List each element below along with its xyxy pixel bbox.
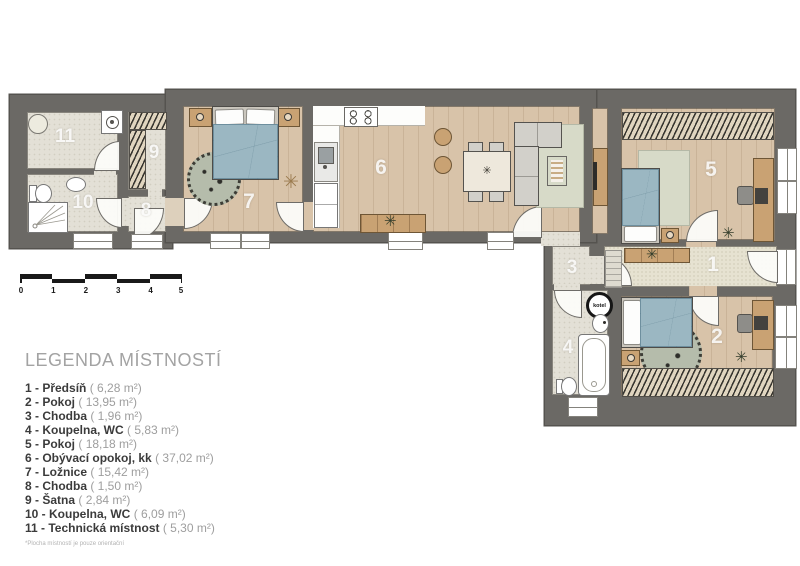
nightstand-room7-left — [189, 108, 212, 127]
window-room7-b — [241, 233, 270, 249]
window-room2-b — [775, 337, 797, 369]
nightstand-room5 — [661, 228, 679, 243]
legend-item: 3 - Chodba ( 1,96 m²) — [25, 409, 305, 423]
window-room8 — [131, 234, 163, 249]
toilet-bowl-room4 — [561, 377, 577, 396]
scale-tick-left — [20, 274, 22, 283]
window-room10 — [73, 233, 113, 249]
window-room6-a — [388, 232, 423, 250]
plant-room2-icon: ✳ — [735, 350, 748, 365]
window-room4 — [568, 397, 598, 417]
door-gap-room9 — [148, 189, 162, 197]
scale-label-2: 2 — [81, 286, 91, 295]
legend: LEGENDA MÍSTNOSTÍ 1 - Předsíň ( 6,28 m²)… — [25, 350, 305, 547]
duvet-room7 — [213, 124, 278, 179]
window-room2-a — [775, 305, 797, 337]
scale-segment — [117, 279, 149, 284]
room-label-5: 5 — [698, 159, 724, 180]
room-label-8: 8 — [136, 201, 156, 220]
window-room6-b — [487, 232, 514, 250]
table-centerpiece-icon: ✳ — [482, 166, 491, 177]
wardrobe-room9-top — [129, 112, 167, 130]
pillow-room7-left — [215, 108, 245, 125]
scale-tick-right — [181, 274, 183, 283]
bar-stool-a — [434, 128, 452, 146]
tv-icon — [593, 162, 597, 190]
nightstand-room2 — [621, 350, 640, 366]
scale-label-1: 1 — [48, 286, 58, 295]
room-label-4: 4 — [558, 338, 578, 357]
legend-item: 2 - Pokoj ( 13,95 m²) — [25, 395, 305, 409]
room-label-3: 3 — [562, 258, 582, 277]
room-label-9: 9 — [144, 143, 164, 162]
coffee-table — [547, 156, 567, 186]
room-label-10: 10 — [66, 193, 100, 212]
scale-label-4: 4 — [146, 286, 156, 295]
legend-item: 6 - Obývací opokoj, kk ( 37,02 m²) — [25, 451, 305, 465]
scale-segment — [85, 274, 117, 279]
room-label-6: 6 — [368, 157, 394, 178]
laptop-room5 — [755, 188, 768, 204]
sofa-top — [514, 122, 562, 148]
shower-rays-icon — [29, 203, 67, 232]
room-label-11: 11 — [48, 127, 82, 146]
room-label-7: 7 — [236, 191, 262, 212]
room-label-1: 1 — [700, 254, 726, 275]
plant-room6-icon: ✳ — [384, 214, 397, 229]
wardrobe-room2 — [622, 368, 774, 397]
scale-bar: 0 1 2 3 4 5 — [18, 272, 184, 296]
floorplan-canvas: 11 10 9 8 ✳ 7 ✳ — [0, 0, 800, 566]
boiler-tank-icon — [28, 114, 48, 134]
plant-room1-icon: ✳ — [646, 247, 658, 261]
scale-label-5: 5 — [176, 286, 186, 295]
legend-item: 9 - Šatna ( 2,84 m²) — [25, 493, 305, 507]
stove-icon — [344, 107, 378, 127]
legend-item: 7 - Ložnice ( 15,42 m²) — [25, 465, 305, 479]
pillow-room7-right — [246, 108, 276, 125]
washing-machine-icon — [101, 110, 123, 134]
legend-footnote: *Plocha místností je pouze orientační — [25, 541, 305, 547]
legend-item: 4 - Koupelna, WC ( 5,83 m²) — [25, 423, 305, 437]
desk-chair-room5 — [737, 186, 754, 205]
pillow-room2 — [623, 300, 641, 345]
legend-item: 1 - Předsíň ( 6,28 m²) — [25, 381, 305, 395]
bar-stool-b — [434, 156, 452, 174]
scale-segment — [20, 274, 52, 279]
room-label-2: 2 — [704, 326, 730, 347]
legend-item: 10 - Koupelna, WC ( 6,09 m²) — [25, 507, 305, 521]
window-room5-a — [777, 148, 797, 181]
legend-item: 11 - Technická místnost ( 5,30 m²) — [25, 521, 305, 535]
scale-label-0: 0 — [16, 286, 26, 295]
scale-segment — [52, 279, 84, 284]
duvet-room2 — [640, 298, 692, 347]
scale-segment — [150, 274, 182, 279]
legend-item: 5 - Pokoj ( 18,18 m²) — [25, 437, 305, 451]
plant-room7-icon: ✳ — [283, 173, 299, 192]
pillow-room5 — [624, 226, 657, 242]
sink-room4 — [592, 314, 609, 333]
window-room7-a — [210, 233, 241, 249]
door-gap-room7-room8 — [165, 198, 184, 226]
boiler-label: kotel — [593, 303, 606, 309]
kitchen-cabinet — [314, 183, 338, 228]
nightstand-room7-right — [277, 108, 300, 127]
passage-room6-room3 — [541, 232, 580, 246]
scale-label-3: 3 — [113, 286, 123, 295]
sofa-left — [514, 146, 539, 206]
legend-title: LEGENDA MÍSTNOSTÍ — [25, 350, 305, 371]
shower-room10 — [28, 202, 68, 233]
desk-chair-room2 — [737, 314, 753, 333]
toilet-bowl-room10 — [35, 184, 52, 203]
door-gap-room3-room1 — [589, 256, 605, 284]
sink-room10 — [66, 177, 86, 192]
laptop-room2 — [754, 316, 768, 330]
dining-table: ✳ — [463, 151, 511, 192]
kitchen-sink-unit — [314, 142, 338, 182]
shoe-rack-room1 — [605, 250, 622, 288]
duvet-room5 — [622, 169, 659, 226]
legend-item: 8 - Chodba ( 1,50 m²) — [25, 479, 305, 493]
wardrobe-room5 — [622, 112, 774, 140]
window-room5-b — [777, 181, 797, 214]
bathtub-room4 — [578, 334, 610, 396]
entrance-opening — [776, 249, 796, 285]
plant-room5-icon: ✳ — [722, 226, 735, 241]
